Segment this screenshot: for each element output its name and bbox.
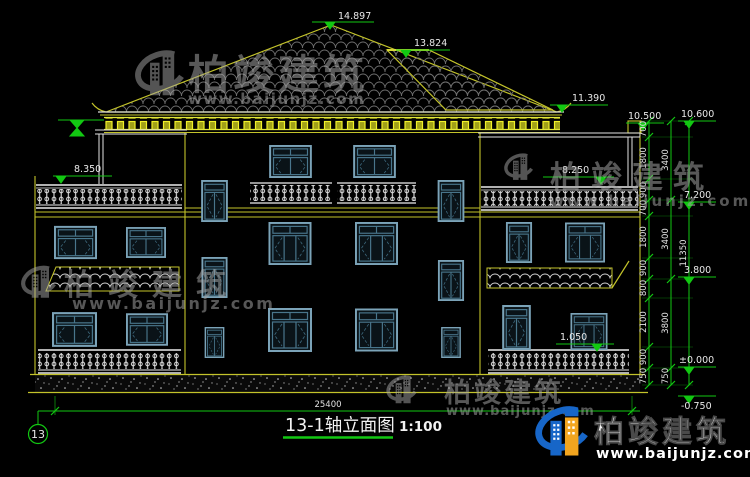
level-window-sill: 1.050 xyxy=(560,332,587,343)
level-site: -0.750 xyxy=(681,401,712,412)
left-level-mark xyxy=(70,120,84,136)
balustrade-left-top xyxy=(36,185,182,208)
level-terrace-outer: 10.600 xyxy=(681,109,714,120)
dim: 900 xyxy=(639,349,649,365)
title-block: 13-1轴立面图 1:100 xyxy=(283,416,442,438)
level-terrace-inner: 10.500 xyxy=(628,111,661,122)
dim: 3800 xyxy=(661,312,671,334)
dim: 900 xyxy=(639,260,649,276)
level-roof-peak: 14.897 xyxy=(338,11,371,22)
level-ground: ±0.000 xyxy=(679,355,714,366)
level-roof-ridge: 13.824 xyxy=(414,38,447,49)
wall-outlines xyxy=(35,121,641,374)
dim: 800 xyxy=(639,280,649,296)
balustrade-attic-left xyxy=(250,183,332,203)
level-roof-eave: 11.390 xyxy=(572,93,605,104)
window xyxy=(356,309,397,350)
dim-total-height: 11350 xyxy=(679,239,689,266)
dim: 700 xyxy=(639,121,649,137)
window xyxy=(566,223,604,261)
axis-number: 13 xyxy=(31,428,45,441)
window xyxy=(55,227,96,258)
watermark-url: www.baijunjz.com xyxy=(72,294,275,313)
watermark-url: www.baijunjz.com xyxy=(188,90,365,108)
window xyxy=(507,223,531,262)
dim: 750 xyxy=(661,368,671,384)
window xyxy=(127,228,165,257)
dim: 2100 xyxy=(639,311,649,333)
dim: 750 xyxy=(639,368,649,384)
awning-right xyxy=(487,261,629,288)
balustrade-left-bottom xyxy=(38,350,181,373)
cad-canvas: 14.897 13.824 11.390 10.500 10.600 8.350… xyxy=(0,0,750,477)
window xyxy=(354,146,395,177)
window xyxy=(202,181,227,221)
window xyxy=(439,181,464,221)
window xyxy=(270,146,311,177)
watermark-url: www.baijunjz.com xyxy=(550,192,750,210)
window xyxy=(503,306,530,349)
building-swoosh-icon xyxy=(506,155,532,180)
drawing-scale: 1:100 xyxy=(399,419,442,435)
logo-url-text: www.baijunjz.com xyxy=(596,446,750,462)
window xyxy=(269,309,311,351)
drawing-title: 13-1轴立面图 xyxy=(285,416,395,436)
balustrade-attic-right xyxy=(337,183,416,203)
axis-bubble: 13 xyxy=(29,425,48,444)
window xyxy=(442,328,460,358)
window xyxy=(269,223,310,264)
window xyxy=(205,328,223,358)
dim: 1800 xyxy=(639,226,649,248)
window xyxy=(439,261,463,300)
dim-total-width: 25400 xyxy=(314,400,341,410)
watermark-brand: 柏竣建筑 xyxy=(550,160,714,196)
level-left-terrace: 8.350 xyxy=(74,164,101,175)
window xyxy=(53,313,96,346)
elevation-drawing: 14.897 13.824 11.390 10.500 10.600 8.350… xyxy=(0,0,750,477)
window xyxy=(356,223,397,264)
logo-brand-text: 柏竣建筑 xyxy=(594,415,730,450)
balustrade-right-bottom xyxy=(488,350,629,373)
window xyxy=(127,314,167,345)
dim: 3400 xyxy=(661,228,671,250)
